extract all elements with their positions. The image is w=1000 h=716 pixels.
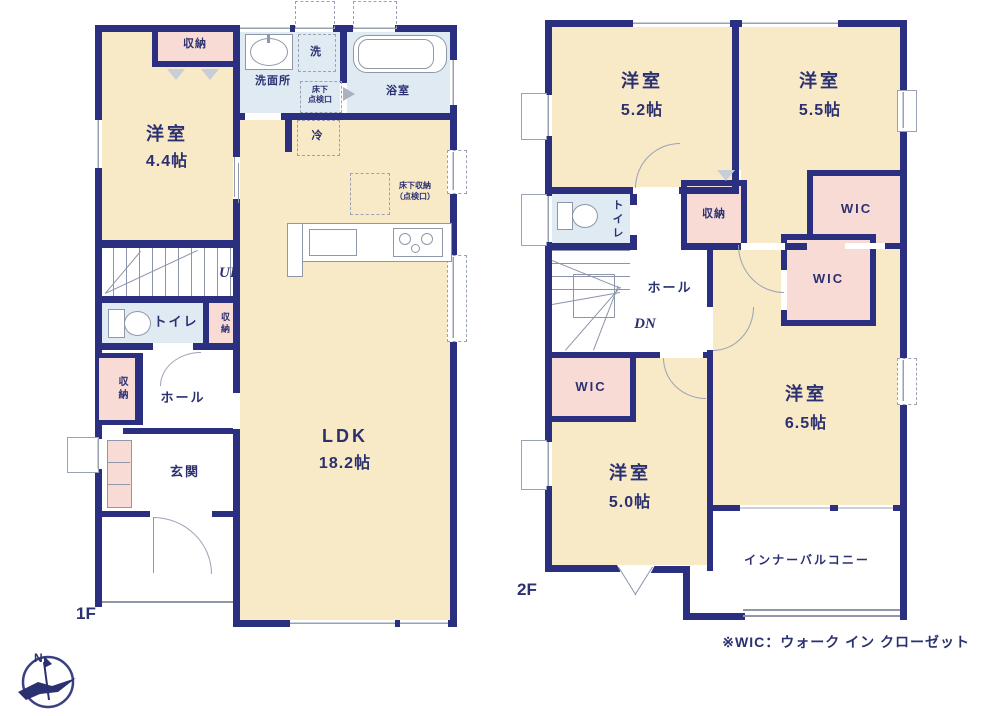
- window: [95, 120, 102, 168]
- stove-burner: [421, 233, 433, 245]
- washer-label: 洗: [298, 46, 334, 58]
- window: [740, 505, 830, 511]
- toilet-label: トイレ: [603, 198, 623, 242]
- toilet-tank: [108, 309, 125, 338]
- underfloor-hatch-label1: 床下: [300, 85, 340, 95]
- toilet-bowl: [124, 311, 151, 336]
- window: [450, 60, 457, 105]
- fridge-label: 冷: [297, 130, 338, 142]
- wall: [203, 303, 209, 343]
- room-area: 5.2帖: [587, 102, 697, 120]
- room-label: 洋室: [751, 385, 861, 405]
- closet-label: 収納: [212, 308, 230, 340]
- closet-label: 収納: [687, 208, 741, 220]
- closet-hanger-icon: [167, 69, 185, 80]
- floor1-tag: 1F: [76, 604, 96, 624]
- room-area: 5.0帖: [575, 494, 685, 512]
- toilet-bowl: [572, 204, 598, 228]
- ldk-label: LDK: [290, 427, 400, 447]
- window: [900, 360, 907, 401]
- bathroom-label: 浴室: [365, 85, 431, 97]
- hall-label: ホール: [143, 391, 223, 405]
- toilet-label: トイレ: [150, 315, 202, 329]
- window: [900, 92, 907, 128]
- room-area: 4.4帖: [112, 153, 222, 171]
- window: [450, 257, 457, 338]
- wall: [545, 416, 636, 422]
- kitchen-sink-icon: [309, 229, 357, 256]
- wall: [285, 120, 292, 152]
- stove-burner: [411, 244, 420, 253]
- wall: [630, 358, 636, 422]
- window: [742, 20, 838, 27]
- room-western-5_5: [739, 27, 900, 170]
- window: [95, 439, 102, 469]
- room-label: 洋室: [112, 125, 222, 145]
- porch-edge: [102, 601, 233, 603]
- floor2-plan: 洋室 5.2帖 洋室 5.5帖 トイレ 収納 WIC WIC WIC ホール D…: [545, 20, 907, 620]
- floor1-plan: 洋室 4.4帖 収納 洗面所 洗 浴室 床下 点検口 冷 床下収納 （点検口） …: [95, 25, 457, 627]
- compass-icon: N: [12, 648, 82, 712]
- wall: [95, 296, 240, 303]
- bathroom-door-icon: [343, 87, 355, 101]
- door-opening: [630, 205, 637, 235]
- room-area: 5.5帖: [765, 102, 875, 120]
- room-label: 洋室: [765, 72, 875, 92]
- bathtub-inner: [358, 39, 434, 69]
- sliding-door-line: [234, 157, 235, 197]
- wall: [545, 565, 620, 572]
- wall: [707, 352, 713, 571]
- wic-label: WIC: [787, 272, 870, 286]
- underfloor-storage-label2: （点検口）: [389, 192, 441, 202]
- door-opening: [153, 343, 193, 350]
- underfloor-storage-box: [350, 173, 390, 215]
- sliding-door-line: [238, 163, 239, 203]
- shelf-line: [107, 484, 130, 485]
- closet-hanger-icon: [717, 170, 735, 181]
- window-box: [521, 194, 547, 246]
- window: [450, 152, 457, 190]
- ldk-area: 18.2帖: [290, 455, 400, 473]
- shelf-line: [107, 462, 130, 463]
- window: [400, 620, 448, 627]
- room-label: 洋室: [587, 72, 697, 92]
- wall: [95, 240, 240, 248]
- wall: [95, 25, 102, 607]
- wall: [152, 61, 235, 67]
- door-opening: [633, 187, 679, 194]
- door-opening: [845, 243, 885, 249]
- door-opening: [233, 393, 240, 429]
- wall: [683, 613, 745, 620]
- wic-label: WIC: [552, 380, 630, 394]
- down-label: DN: [625, 316, 665, 333]
- window-box: [521, 93, 547, 140]
- exterior-equipment: [353, 1, 397, 29]
- balcony-label: インナーバルコニー: [727, 554, 887, 567]
- wall: [732, 20, 739, 187]
- closet-label: 収納: [107, 367, 127, 411]
- underfloor-hatch-label2: 点検口: [300, 95, 340, 105]
- door-opening: [245, 113, 281, 120]
- floor2-tag: 2F: [517, 580, 537, 600]
- washroom-label: 洗面所: [241, 75, 305, 87]
- window: [240, 25, 290, 32]
- north-label: N: [34, 651, 43, 665]
- closet-label: 収納: [157, 38, 233, 50]
- stove-burner: [399, 233, 411, 245]
- window: [545, 95, 552, 136]
- window-box: [521, 440, 547, 490]
- kitchen-counter-return: [287, 223, 303, 277]
- hall-label: ホール: [633, 281, 707, 295]
- front-door-leaf: [153, 517, 154, 573]
- exterior-equipment: [295, 1, 335, 29]
- room-area: 6.5帖: [751, 415, 861, 433]
- faucet: [267, 35, 270, 43]
- wic-label: WIC: [813, 202, 900, 216]
- up-label: UP: [209, 265, 249, 282]
- closet-hanger-icon: [201, 69, 219, 80]
- door-opening: [150, 511, 212, 517]
- window: [633, 20, 730, 27]
- window: [545, 196, 552, 242]
- room-label: 洋室: [575, 464, 685, 484]
- window: [545, 442, 552, 486]
- toilet-tank: [557, 202, 573, 230]
- wall: [545, 243, 637, 250]
- window: [838, 505, 893, 511]
- balcony-railing: [743, 609, 900, 611]
- entrance-label: 玄関: [145, 465, 225, 479]
- balcony-railing: [743, 615, 900, 617]
- window: [290, 620, 395, 627]
- wall: [123, 428, 240, 434]
- shoe-cabinet: [107, 440, 132, 508]
- floor-plan-canvas: 洋室 4.4帖 収納 洗面所 洗 浴室 床下 点検口 冷 床下収納 （点検口） …: [0, 0, 1000, 716]
- wic-note: ※WIC：ウォーク イン クローゼット: [690, 632, 970, 652]
- underfloor-storage-label1: 床下収納: [389, 181, 441, 191]
